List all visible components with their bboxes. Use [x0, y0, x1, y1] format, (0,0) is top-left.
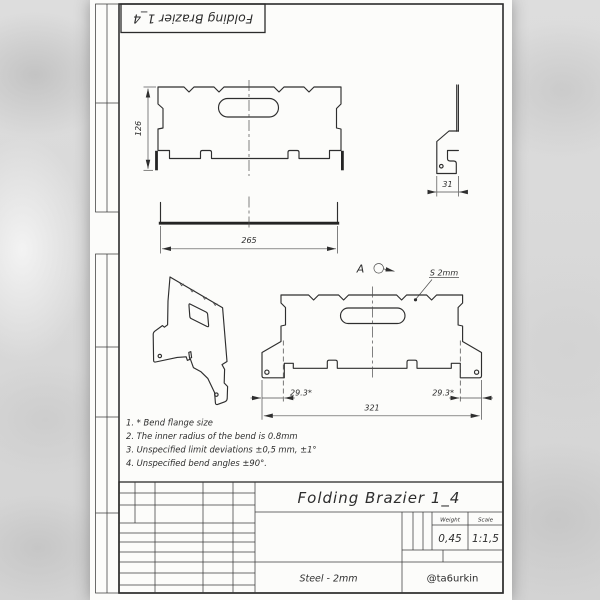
iso-slot [189, 304, 209, 327]
scale-value: 1:1,5 [472, 533, 499, 545]
dim-265: 265 [161, 226, 338, 254]
title-block: Folding Brazier 1_4 Weight Scale 0,45 1:… [119, 482, 503, 593]
margin-boxes-bottom [96, 254, 120, 593]
dim-265-text: 265 [241, 236, 256, 245]
notes: 1. * Bend flange size 2. The inner radiu… [126, 418, 317, 469]
dim-31-text: 31 [442, 180, 452, 189]
isometric-view [153, 277, 227, 405]
photo-backdrop: Folding Brazier 1_4 126 [0, 0, 600, 600]
thickness-leader-dot [414, 298, 417, 301]
top-stamp: Folding Brazier 1_4 [121, 4, 265, 33]
margin-boxes-top [96, 4, 120, 212]
iso-tab-detail [189, 352, 192, 359]
dim-126: 126 [134, 87, 156, 170]
bottom-view: 265 [159, 197, 339, 254]
front-view: 126 [134, 80, 342, 176]
flat-outline [262, 295, 482, 378]
front-view-outline [158, 87, 341, 159]
note-1: 1. * Bend flange size [126, 418, 213, 428]
front-slot [219, 99, 279, 118]
iso-hole-left [158, 354, 161, 357]
scale-label: Scale [478, 518, 494, 524]
note-4: 4. Unspecified bend angles ±90°. [126, 458, 267, 468]
dim-bend-left: 29.3* [251, 380, 312, 420]
side-flange-hole [440, 164, 444, 168]
note-3: 3. Unspecified limit deviations ±0,5 mm,… [126, 445, 317, 455]
thickness-leader [416, 280, 433, 300]
title-block-title: Folding Brazier 1_4 [298, 489, 461, 508]
weight-label: Weight [440, 518, 461, 524]
top-stamp-label: Folding Brazier 1_4 [133, 12, 253, 27]
view-direction-arrow [384, 269, 395, 271]
dim-bend-right-text: 29.3* [432, 389, 454, 398]
dim-31: 31 [428, 176, 468, 197]
side-view: 31 [428, 85, 468, 197]
dim-bend-right: 29.3* [432, 380, 493, 420]
dim-bend-left-text: 29.3* [290, 389, 312, 398]
dim-321: 321 [264, 404, 480, 416]
view-direction-icon [374, 264, 384, 274]
flat-hole-right [475, 370, 479, 374]
material-value: Steel - 2mm [299, 574, 357, 585]
drawing-canvas: Folding Brazier 1_4 126 [0, 0, 600, 600]
view-a-label: A [356, 263, 365, 276]
dim-321-text: 321 [364, 404, 379, 413]
dim-126-text: 126 [134, 121, 143, 136]
author-value: @ta6urkin [427, 574, 479, 585]
thickness-label: S 2mm [430, 269, 459, 278]
weight-value: 0,45 [438, 533, 462, 545]
iso-outline [153, 277, 227, 405]
note-2: 2. The inner radius of the bend is 0.8mm [126, 431, 298, 441]
flat-hole-left [265, 370, 269, 374]
iso-hole-right [215, 393, 218, 396]
flat-pattern-view: A S 2mm 29.3* [251, 263, 494, 420]
